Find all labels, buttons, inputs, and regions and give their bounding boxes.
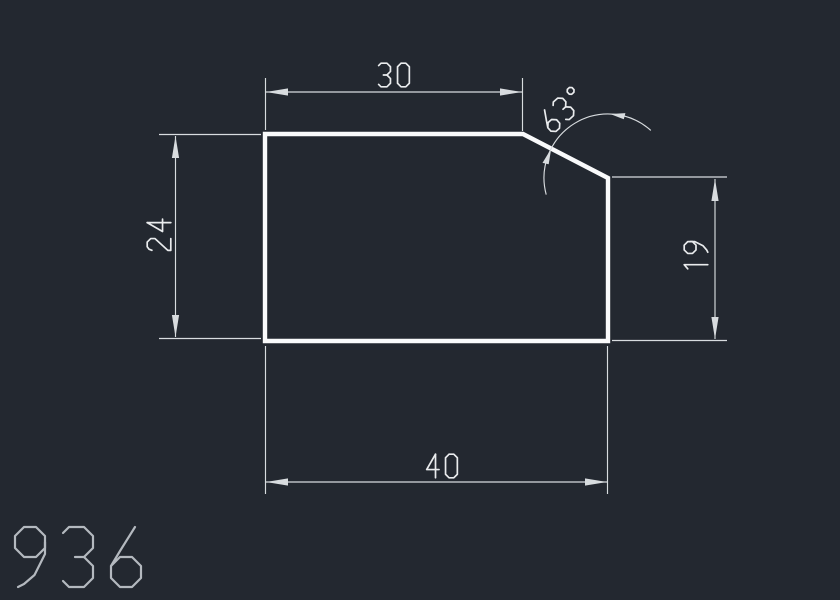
- stick-glyph-stroke: [427, 454, 439, 469]
- cad-viewport[interactable]: [0, 0, 840, 600]
- stick-glyph-stroke: [398, 63, 410, 87]
- stick-glyph-stroke: [552, 96, 569, 113]
- dimension-top-width: [266, 63, 523, 131]
- dimension-left-height: [147, 135, 261, 339]
- arrowhead-left: [266, 88, 288, 95]
- stick-glyph-stroke: [690, 242, 708, 253]
- stick-glyph-stroke: [147, 219, 162, 231]
- dimension-text-top-width: [379, 63, 410, 87]
- cad-drawing-canvas[interactable]: [0, 0, 840, 600]
- part-outline: [265, 134, 608, 341]
- dimension-text-right-height: [684, 242, 708, 269]
- dimension-text-left-height: [147, 219, 171, 250]
- stick-glyph-stroke: [684, 265, 708, 269]
- arrowhead-top: [172, 136, 179, 158]
- arrowhead-arc-left: [543, 149, 552, 165]
- stick-glyph-stroke: [538, 108, 563, 133]
- arrowhead-bottom: [711, 317, 718, 339]
- part-label: [15, 527, 141, 587]
- arrowhead-arc-right: [610, 113, 625, 119]
- arrowhead-right: [500, 88, 522, 95]
- dimension-right-height: [612, 177, 727, 341]
- stick-glyph-stroke: [559, 104, 576, 121]
- arrowhead-bottom: [172, 315, 179, 337]
- stick-glyph-stroke: [379, 75, 391, 87]
- stick-glyph-stroke: [566, 86, 575, 95]
- dimension-text-bottom-width: [427, 454, 458, 478]
- stick-glyph-stroke: [15, 527, 45, 557]
- dimension-bottom-width: [266, 346, 608, 494]
- arrowhead-right: [585, 478, 607, 485]
- stick-glyph-stroke: [446, 454, 458, 478]
- dimension-chamfer-angle: [538, 86, 651, 194]
- stick-glyph-stroke: [63, 557, 93, 587]
- stick-glyph-stroke: [111, 527, 141, 587]
- stick-glyph-stroke: [18, 542, 45, 587]
- stick-glyph-stroke: [379, 63, 391, 75]
- arrowhead-left: [266, 478, 288, 485]
- dimension-text-chamfer-angle: [538, 86, 587, 134]
- stick-glyph-stroke: [63, 527, 93, 557]
- stick-glyph-stroke: [684, 242, 696, 254]
- stick-glyph-stroke: [147, 239, 171, 251]
- arrowhead-top: [711, 179, 718, 201]
